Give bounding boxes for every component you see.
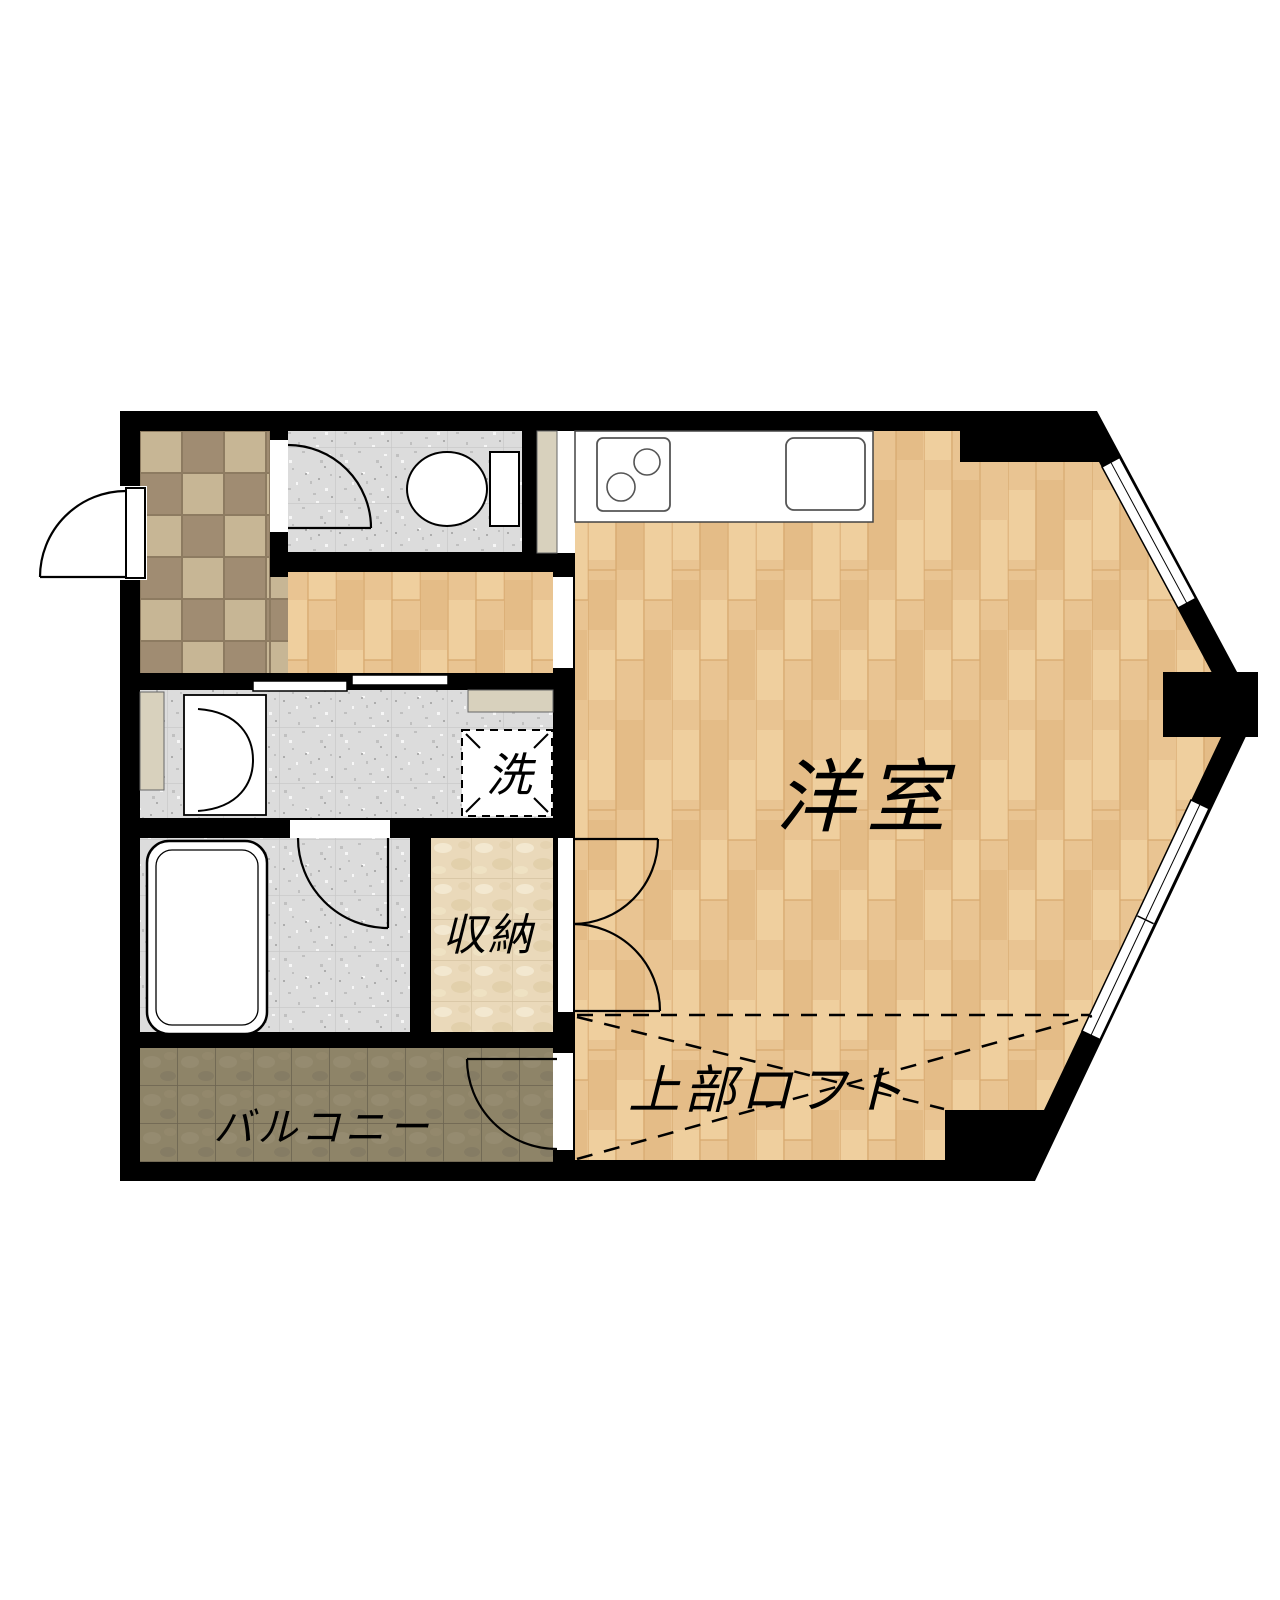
label-balcony: バルコニー [213,1105,432,1151]
floor-plan: 洋室 上部ロフト 収納 洗 バルコニー [0,0,1280,1600]
toilet-door-opening [270,440,288,532]
bath-door-opening [290,820,390,838]
label-loft: 上部ロフト [628,1061,908,1121]
wall-patch-toilet-door-top [270,431,288,440]
label-storage: 収納 [442,910,536,961]
label-laundry: 洗 [486,748,537,802]
hall-to-room-opening [553,577,573,668]
storage-door-opening [558,838,573,1012]
stove-burner [607,473,635,501]
wall-patch-toilet-door-bottom [270,532,288,577]
kitchen-corner-white [557,431,575,553]
toilet-bowl [407,452,487,526]
bathtub-outer [147,841,267,1034]
entrance-door-swing [40,491,126,577]
balcony-door-opening [553,1053,573,1150]
floor-plan-page: 洋室 上部ロフト 収納 洗 バルコニー [0,0,1280,1600]
cabinet-strip-toilet [537,431,557,553]
cabinet-strip-left [140,692,164,790]
toilet-tank [490,452,519,526]
entrance-door-leaf [126,488,145,578]
bay-center-pillar [1163,672,1258,737]
cabinet-shelf-washroom [468,690,553,712]
kitchen-sink [786,438,865,510]
genkan-floor [140,431,288,673]
stove-burner [634,449,660,475]
floors [140,431,1233,1162]
stove [597,438,670,511]
label-western-room: 洋室 [776,751,956,844]
hallway-floor [288,572,553,673]
